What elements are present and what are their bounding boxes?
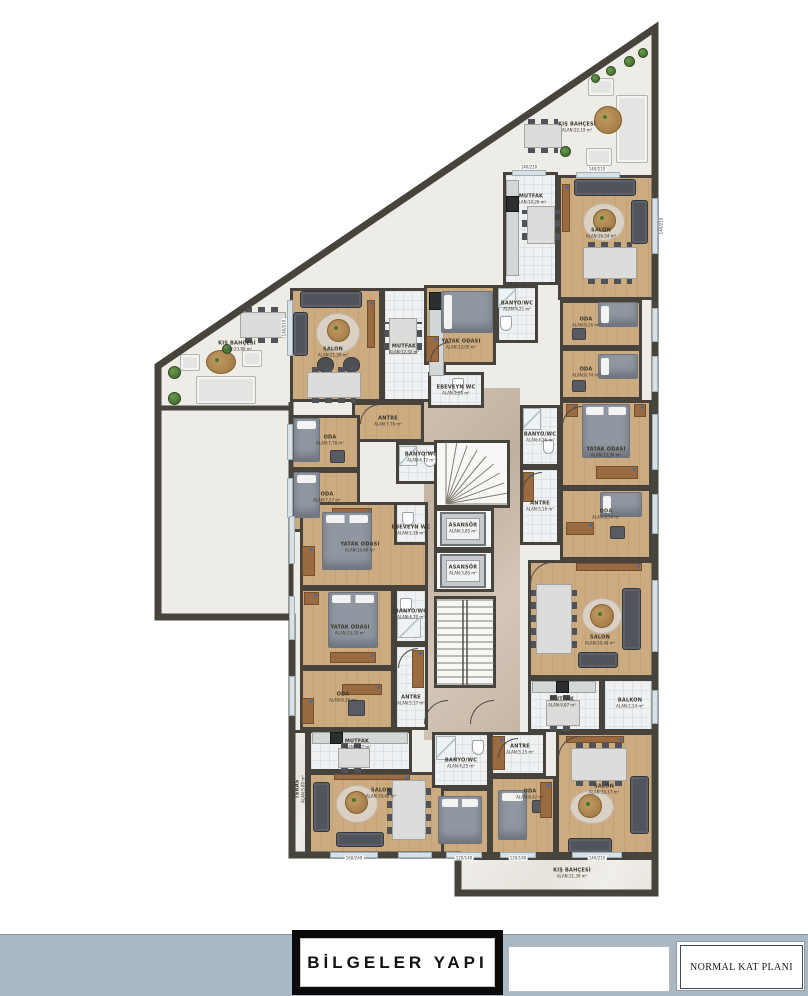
dimension-tag: 140/210	[659, 217, 664, 236]
blank-box	[508, 946, 670, 992]
floor-plan-page: KIŞ BAHÇESİALAN:11,39 m²SALONALAN:26,54 …	[0, 0, 808, 996]
brand-box: BİLGELER YAPI	[292, 930, 503, 995]
brand-box-inner: BİLGELER YAPI	[300, 938, 495, 987]
plan-type-label: NORMAL KAT PLANI	[680, 945, 803, 989]
title-bar: BİLGELER YAPI NORMAL KAT PLANI	[0, 930, 808, 996]
plan-type-box: NORMAL KAT PLANI	[676, 941, 805, 991]
dimension-tag: 120/140	[455, 856, 474, 861]
dimension-tag: 140/210	[588, 167, 607, 172]
dimension-tags-layer: 140/210140/210160/240120/140120/140140/2…	[0, 0, 808, 996]
dimension-tag: 120/140	[509, 856, 528, 861]
dimension-tag: 160/240	[345, 856, 364, 861]
brand-title: BİLGELER YAPI	[307, 953, 487, 973]
dimension-tag: 140/210	[282, 319, 287, 338]
dimension-tag: 140/210	[588, 856, 607, 861]
dimension-tag: 140/210	[520, 165, 539, 170]
